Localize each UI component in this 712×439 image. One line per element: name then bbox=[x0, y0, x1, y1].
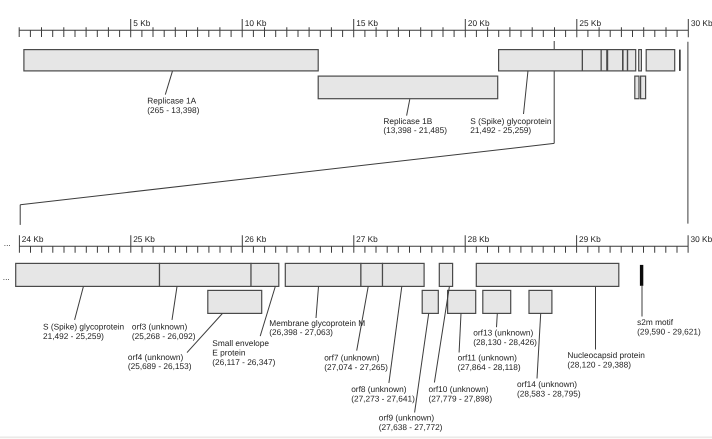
svg-text:(27,864 - 28,118): (27,864 - 28,118) bbox=[458, 362, 521, 372]
svg-text:25 Kb: 25 Kb bbox=[579, 18, 601, 28]
svg-text:25 Kb: 25 Kb bbox=[133, 234, 155, 244]
svg-text:(26,117 - 26,347): (26,117 - 26,347) bbox=[212, 357, 275, 367]
svg-text:5 Kb: 5 Kb bbox=[133, 18, 150, 28]
svg-text:(28,120 - 29,388): (28,120 - 29,388) bbox=[567, 359, 631, 369]
svg-text:(27,779 - 27,898): (27,779 - 27,898) bbox=[429, 394, 493, 404]
svg-text:(28,583 - 28,795): (28,583 - 28,795) bbox=[517, 388, 581, 398]
svg-text:(27,638 - 27,772): (27,638 - 27,772) bbox=[379, 422, 443, 432]
svg-text:(25,689 - 26,153): (25,689 - 26,153) bbox=[128, 361, 192, 371]
svg-text:30 Kb: 30 Kb bbox=[691, 234, 712, 244]
svg-text:(26,398 - 27,063): (26,398 - 27,063) bbox=[269, 327, 333, 337]
svg-text:15 Kb: 15 Kb bbox=[356, 18, 378, 28]
svg-text:21,492 - 25,259): 21,492 - 25,259) bbox=[470, 125, 531, 135]
svg-text:(265 - 13,398): (265 - 13,398) bbox=[147, 105, 199, 115]
svg-text:24 Kb: 24 Kb bbox=[22, 234, 44, 244]
svg-text:(27,074 - 27,265): (27,074 - 27,265) bbox=[324, 362, 388, 372]
svg-text:30 Kb: 30 Kb bbox=[691, 18, 712, 28]
svg-text:(25,268 - 26,092): (25,268 - 26,092) bbox=[132, 331, 196, 341]
svg-text:(13,398 - 21,485): (13,398 - 21,485) bbox=[383, 125, 447, 135]
svg-text:(29,590 - 29,621): (29,590 - 29,621) bbox=[637, 326, 701, 336]
svg-text:...: ... bbox=[3, 272, 10, 282]
svg-text:21,492 - 25,259): 21,492 - 25,259) bbox=[43, 331, 104, 341]
svg-text:10 Kb: 10 Kb bbox=[245, 18, 267, 28]
svg-text:20 Kb: 20 Kb bbox=[468, 18, 490, 28]
svg-text:...: ... bbox=[4, 238, 11, 248]
svg-text:(28,130 - 28,426): (28,130 - 28,426) bbox=[473, 337, 537, 347]
svg-text:(27,273 - 27,641): (27,273 - 27,641) bbox=[351, 394, 415, 404]
svg-text:26 Kb: 26 Kb bbox=[245, 234, 267, 244]
svg-text:29 Kb: 29 Kb bbox=[579, 234, 601, 244]
svg-text:27 Kb: 27 Kb bbox=[356, 234, 378, 244]
svg-text:28 Kb: 28 Kb bbox=[468, 234, 490, 244]
